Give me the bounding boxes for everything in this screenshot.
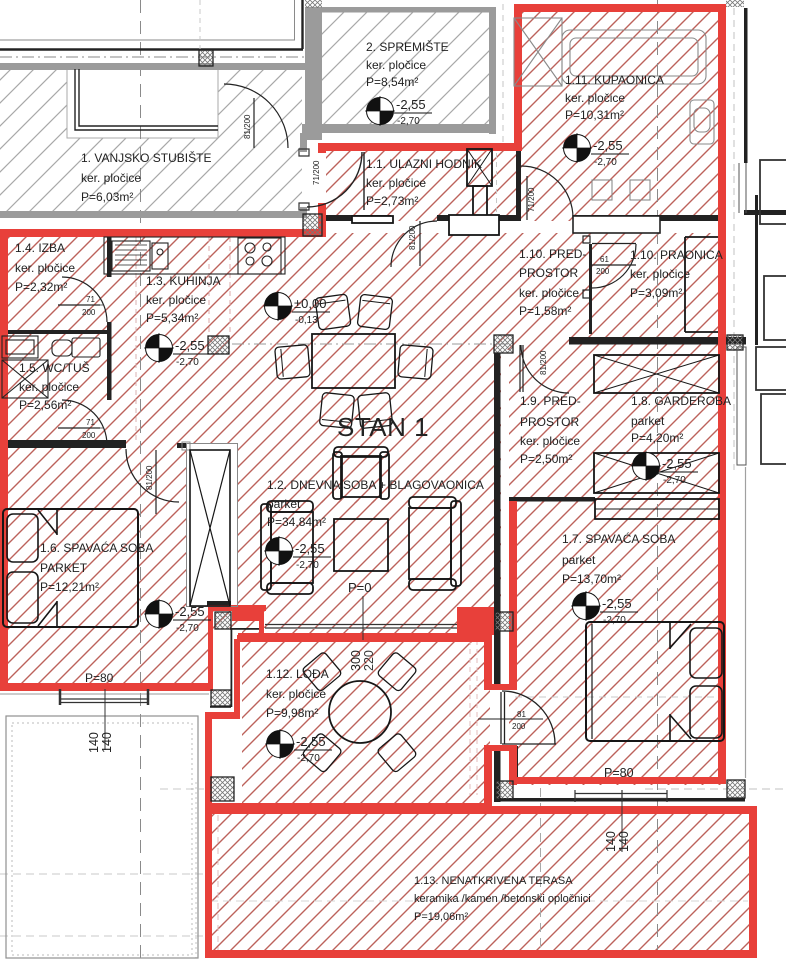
svg-text:81/200: 81/200 [408, 225, 417, 250]
svg-text:-2,55: -2,55 [396, 97, 426, 112]
svg-text:-2,70: -2,70 [296, 560, 319, 571]
svg-text:ker. pločice: ker. pločice [146, 293, 206, 307]
svg-text:P=2,73m²: P=2,73m² [366, 194, 418, 208]
svg-text:ker. pločice: ker. pločice [630, 267, 690, 281]
svg-text:-2,55: -2,55 [295, 541, 325, 556]
svg-text:1.7. SPAVAĆA SOBA: 1.7. SPAVAĆA SOBA [562, 531, 675, 546]
svg-text:-2,70: -2,70 [663, 475, 686, 486]
svg-text:200: 200 [82, 308, 96, 317]
svg-text:ker. pločice: ker. pločice [19, 380, 79, 394]
svg-text:81/200: 81/200 [539, 350, 548, 375]
svg-text:P=4,20m²: P=4,20m² [631, 431, 683, 445]
svg-text:-2,70: -2,70 [176, 623, 199, 634]
svg-text:200: 200 [596, 267, 610, 276]
svg-text:-2,55: -2,55 [602, 596, 632, 611]
svg-text:-2,70: -2,70 [176, 357, 199, 368]
svg-text:300: 300 [349, 650, 363, 671]
svg-text:140: 140 [87, 732, 101, 753]
svg-text:-2,70: -2,70 [297, 753, 320, 764]
svg-text:71: 71 [86, 295, 95, 304]
svg-text:200: 200 [512, 722, 526, 731]
svg-text:-2,55: -2,55 [662, 456, 692, 471]
svg-text:2. SPREMIŠTE: 2. SPREMIŠTE [366, 39, 449, 54]
svg-text:P=2,32m²: P=2,32m² [15, 280, 67, 294]
svg-text:ker. pločice: ker. pločice [266, 687, 326, 701]
svg-text:71/200: 71/200 [312, 160, 321, 185]
svg-text:P=5,34m²: P=5,34m² [146, 311, 198, 325]
svg-text:-2,55: -2,55 [175, 338, 205, 353]
svg-text:PROSTOR: PROSTOR [519, 266, 578, 280]
svg-text:1.3. KUHINJA: 1.3. KUHINJA [146, 274, 221, 288]
svg-text:ker. pločice: ker. pločice [15, 261, 75, 275]
svg-text:81: 81 [517, 710, 526, 719]
svg-text:200: 200 [82, 431, 96, 440]
svg-text:ker. pločice: ker. pločice [519, 286, 579, 300]
svg-text:1.2. DNEVNA SOBA + BLAGOVAONIC: 1.2. DNEVNA SOBA + BLAGOVAONICA [267, 478, 484, 492]
svg-text:STAN 1: STAN 1 [337, 412, 429, 442]
svg-text:61: 61 [600, 255, 609, 264]
svg-text:-2,55: -2,55 [296, 734, 326, 749]
svg-text:ker. pločice: ker. pločice [81, 171, 141, 185]
svg-text:1.1. ULAZNI HODNIK: 1.1. ULAZNI HODNIK [366, 157, 482, 171]
svg-text:ker. pločice: ker. pločice [366, 176, 426, 190]
svg-text:-0,13: -0,13 [295, 315, 318, 326]
svg-text:P=2,50m²: P=2,50m² [520, 452, 572, 466]
svg-text:ker. pločice: ker. pločice [366, 58, 426, 72]
svg-text:P=80: P=80 [604, 766, 634, 780]
svg-text:-2,55: -2,55 [593, 138, 623, 153]
svg-text:81/200: 81/200 [145, 465, 154, 490]
svg-text:P=80: P=80 [85, 671, 114, 685]
svg-text:ker. pločice: ker. pločice [565, 91, 625, 105]
svg-text:parket: parket [562, 553, 596, 567]
svg-text:1.8. GARDEROBA: 1.8. GARDEROBA [631, 394, 731, 408]
svg-text:140: 140 [604, 831, 618, 852]
svg-text:P=8,54m²: P=8,54m² [366, 75, 418, 89]
svg-text:P=2,56m²: P=2,56m² [19, 398, 71, 412]
svg-text:140: 140 [100, 732, 114, 753]
svg-text:P=19,06m²: P=19,06m² [414, 911, 468, 923]
svg-text:P=1,58m²: P=1,58m² [519, 304, 571, 318]
svg-text:-2,70: -2,70 [397, 116, 420, 127]
svg-text:P=10,31m²: P=10,31m² [565, 108, 624, 122]
svg-text:1.12. LOĐA: 1.12. LOĐA [266, 667, 329, 681]
svg-text:1. VANJSKO STUBIŠTE: 1. VANJSKO STUBIŠTE [81, 150, 211, 165]
svg-text:1.11. KUPAONICA: 1.11. KUPAONICA [565, 73, 664, 87]
svg-text:ker. pločice: ker. pločice [520, 434, 580, 448]
svg-text:-2,70: -2,70 [603, 615, 626, 626]
svg-text:71: 71 [86, 418, 95, 427]
svg-text:parket: parket [631, 414, 665, 428]
svg-text:PARKET: PARKET [40, 561, 88, 575]
svg-text:±0,00: ±0,00 [294, 296, 326, 311]
svg-text:P=34,84m²: P=34,84m² [267, 515, 326, 529]
svg-text:140: 140 [617, 831, 631, 852]
svg-text:P=12,21m²: P=12,21m² [40, 580, 99, 594]
svg-text:1.5. WC/TUŠ: 1.5. WC/TUŠ [19, 360, 90, 375]
svg-text:P=13,70m²: P=13,70m² [562, 572, 621, 586]
svg-text:PROSTOR: PROSTOR [520, 415, 579, 429]
svg-text:1.13. NENATKRIVENA TERASA: 1.13. NENATKRIVENA TERASA [414, 875, 573, 887]
svg-text:P=6,03m²: P=6,03m² [81, 190, 133, 204]
svg-text:71/200: 71/200 [527, 187, 536, 212]
svg-text:220: 220 [362, 650, 376, 671]
svg-text:-2,70: -2,70 [594, 157, 617, 168]
svg-text:-2,55: -2,55 [175, 604, 205, 619]
svg-text:1.10. PRED-: 1.10. PRED- [519, 247, 586, 261]
svg-text:1.10. PRAONICA: 1.10. PRAONICA [630, 248, 723, 262]
svg-text:P=9,98m²: P=9,98m² [266, 706, 318, 720]
svg-text:81/200: 81/200 [243, 114, 252, 139]
svg-text:1.6. SPAVAĆA SOBA: 1.6. SPAVAĆA SOBA [40, 540, 153, 555]
svg-text:1.9. PRED-: 1.9. PRED- [520, 394, 581, 408]
svg-text:1.4. IZBA: 1.4. IZBA [15, 241, 65, 255]
svg-text:P=3,09m²: P=3,09m² [630, 286, 682, 300]
svg-text:P=0: P=0 [348, 580, 372, 595]
svg-text:parket: parket [267, 497, 301, 511]
svg-text:keramika /kamen /betonski oplo: keramika /kamen /betonski opločnici [414, 893, 591, 905]
